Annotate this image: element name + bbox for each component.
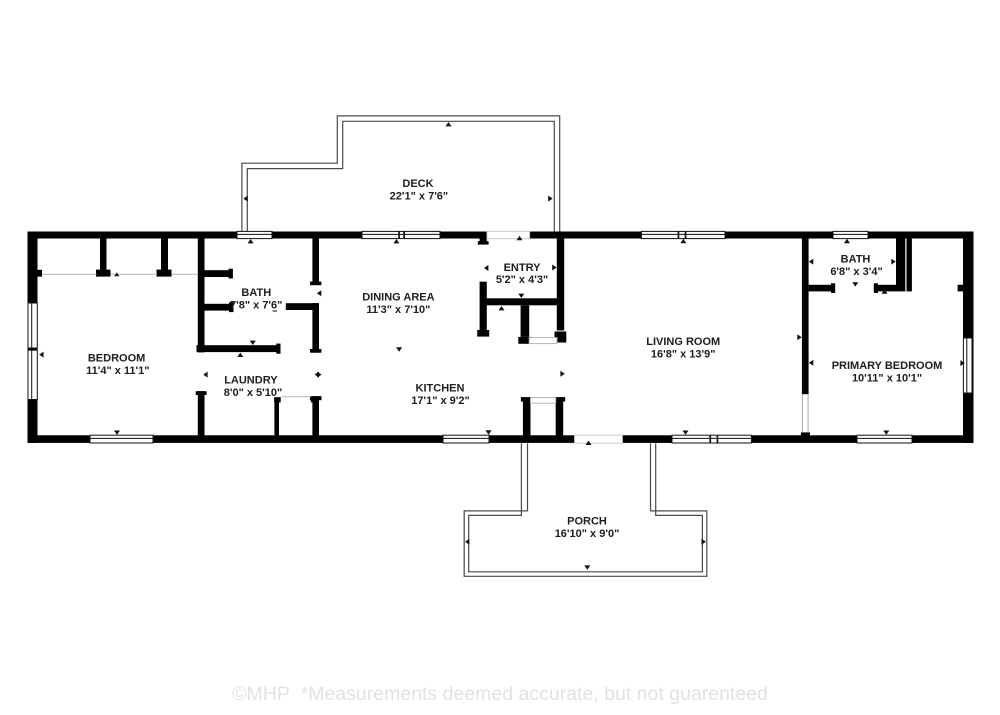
- svg-text:BATH: BATH: [241, 287, 271, 299]
- svg-text:22'1" x 7'6": 22'1" x 7'6": [390, 190, 448, 202]
- svg-text:16'10" x 9'0": 16'10" x 9'0": [555, 528, 620, 540]
- svg-text:6'8" x 3'4": 6'8" x 3'4": [830, 266, 882, 278]
- svg-text:7'8" x 7'6": 7'8" x 7'6": [230, 299, 282, 311]
- svg-text:LAUNDRY: LAUNDRY: [224, 374, 278, 386]
- svg-text:17'1" x 9'2": 17'1" x 9'2": [411, 395, 469, 407]
- svg-text:©MHP *Measurements deemed acc: ©MHP *Measurements deemed accurate, but …: [232, 683, 768, 705]
- svg-text:BATH: BATH: [841, 253, 871, 265]
- svg-text:ENTRY: ENTRY: [504, 262, 542, 274]
- svg-text:LIVING ROOM: LIVING ROOM: [646, 336, 720, 348]
- svg-text:BEDROOM: BEDROOM: [88, 353, 145, 365]
- svg-text:DECK: DECK: [402, 178, 433, 190]
- svg-text:DINING AREA: DINING AREA: [362, 292, 434, 304]
- svg-text:11'4" x 11'1": 11'4" x 11'1": [86, 365, 149, 377]
- svg-text:PORCH: PORCH: [567, 516, 607, 528]
- svg-text:8'0" x 5'10": 8'0" x 5'10": [224, 387, 282, 399]
- svg-text:16'8" x 13'9": 16'8" x 13'9": [651, 348, 716, 360]
- svg-text:KITCHEN: KITCHEN: [416, 383, 465, 395]
- svg-text:11'3" x 7'10": 11'3" x 7'10": [366, 304, 430, 316]
- svg-text:5'2" x 4'3": 5'2" x 4'3": [496, 274, 548, 286]
- svg-text:10'11" x 10'1": 10'11" x 10'1": [852, 373, 922, 385]
- svg-text:PRIMARY BEDROOM: PRIMARY BEDROOM: [832, 360, 943, 372]
